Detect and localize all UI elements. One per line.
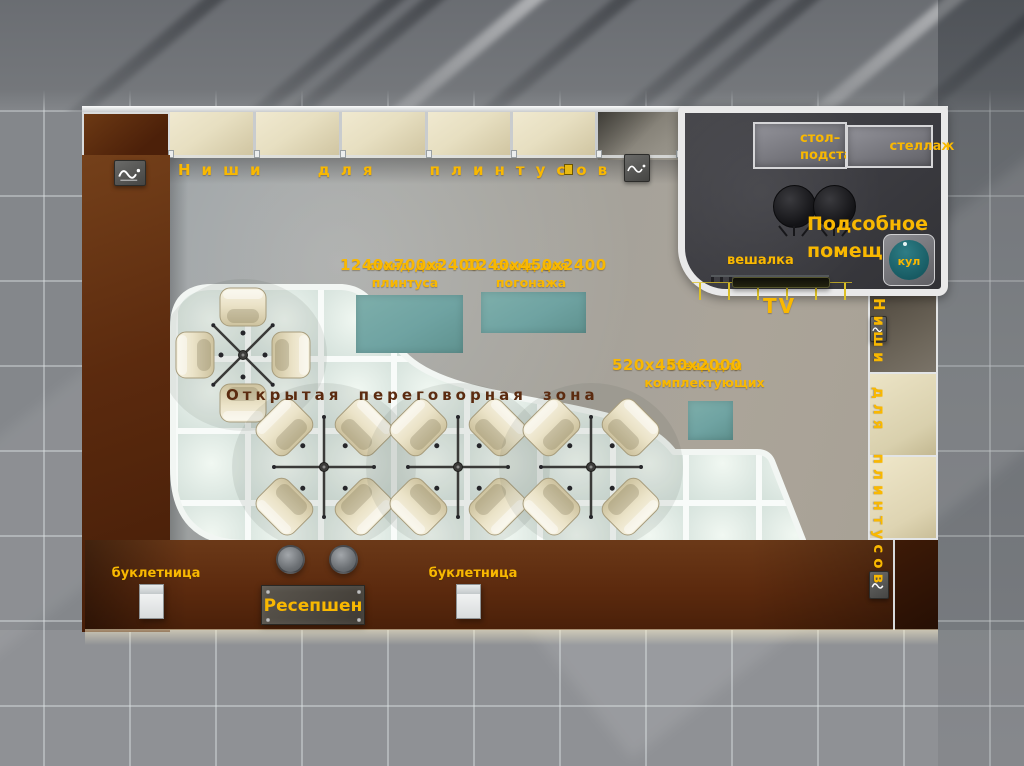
top-niche-panel	[170, 112, 256, 158]
hanger-label: вешалка	[727, 253, 827, 268]
chair-cluster	[499, 383, 683, 551]
top-niche-panel	[428, 112, 513, 158]
booth-floorplan-render: стол– подставка стеллаж Подсобное помеще…	[0, 0, 1024, 766]
booklet-right-label: буклетница	[423, 566, 523, 581]
top-niches-label: Ниши для плинтусов	[178, 161, 618, 179]
reception-counter	[85, 540, 938, 630]
stand-moulding-size: 1240х450х2400	[466, 257, 607, 274]
top-niche-panel	[256, 112, 342, 158]
meeting-zone-label: Открытая переговорная зона	[226, 386, 606, 404]
panel-connector	[426, 150, 432, 158]
right-niches-label: Ниши для плинтусов	[870, 298, 888, 558]
shelf-box: стеллаж	[846, 125, 933, 168]
cooler-highlight	[903, 242, 907, 246]
chair	[176, 332, 214, 378]
tv-label: TV	[763, 294, 833, 318]
booklet-left-label: буклетница	[106, 566, 206, 581]
utility-room: стол– подставка стеллаж Подсобное помеще…	[678, 106, 948, 296]
table-stand-label-1: стол–	[800, 130, 840, 147]
reception-plaque: Ресепшен	[261, 585, 365, 625]
water-cooler: кул	[883, 234, 935, 286]
top-niche-panel	[342, 112, 428, 158]
dimension-tick	[728, 283, 730, 300]
reception-stool	[276, 545, 305, 574]
panel-connector	[511, 150, 517, 158]
panel-connector	[254, 150, 260, 158]
tv-screen	[732, 277, 830, 288]
dimension-tick	[699, 283, 701, 300]
stand-components-footprint	[688, 401, 733, 440]
reception-stool	[329, 545, 358, 574]
cooler-label: кул	[889, 240, 929, 280]
bottom-right-wall-panel	[893, 540, 938, 630]
stand-plinth-footprint	[356, 295, 463, 353]
dimension-tick	[844, 283, 846, 300]
brand-logo-plaque	[114, 160, 146, 186]
panel-connector	[596, 150, 602, 158]
utility-room-title: Подсобное помещение	[707, 211, 907, 238]
reception-label: Ресепшен	[262, 586, 364, 626]
chair	[220, 288, 266, 326]
booklet-holder-flap	[140, 585, 163, 594]
booth-edge-glow	[85, 629, 938, 645]
stand-moulding-footprint	[481, 292, 586, 333]
panel-connector	[340, 150, 346, 158]
shelf-label: стеллаж	[890, 127, 955, 166]
table-stand-box: стол– подставка	[753, 122, 847, 169]
stand-plinth-size: 1240х700х2400	[340, 257, 481, 274]
brand-logo-plaque	[624, 154, 650, 182]
stand-components-size: 520х450х2000	[612, 357, 742, 374]
booklet-holder	[139, 584, 164, 619]
top-wall-brown-panel	[82, 112, 170, 158]
top-niche-panel	[513, 112, 598, 158]
top-niche-gray-panel	[598, 112, 680, 160]
chair	[272, 332, 310, 378]
booklet-holder	[456, 584, 481, 619]
booklet-holder-flap	[457, 585, 480, 594]
